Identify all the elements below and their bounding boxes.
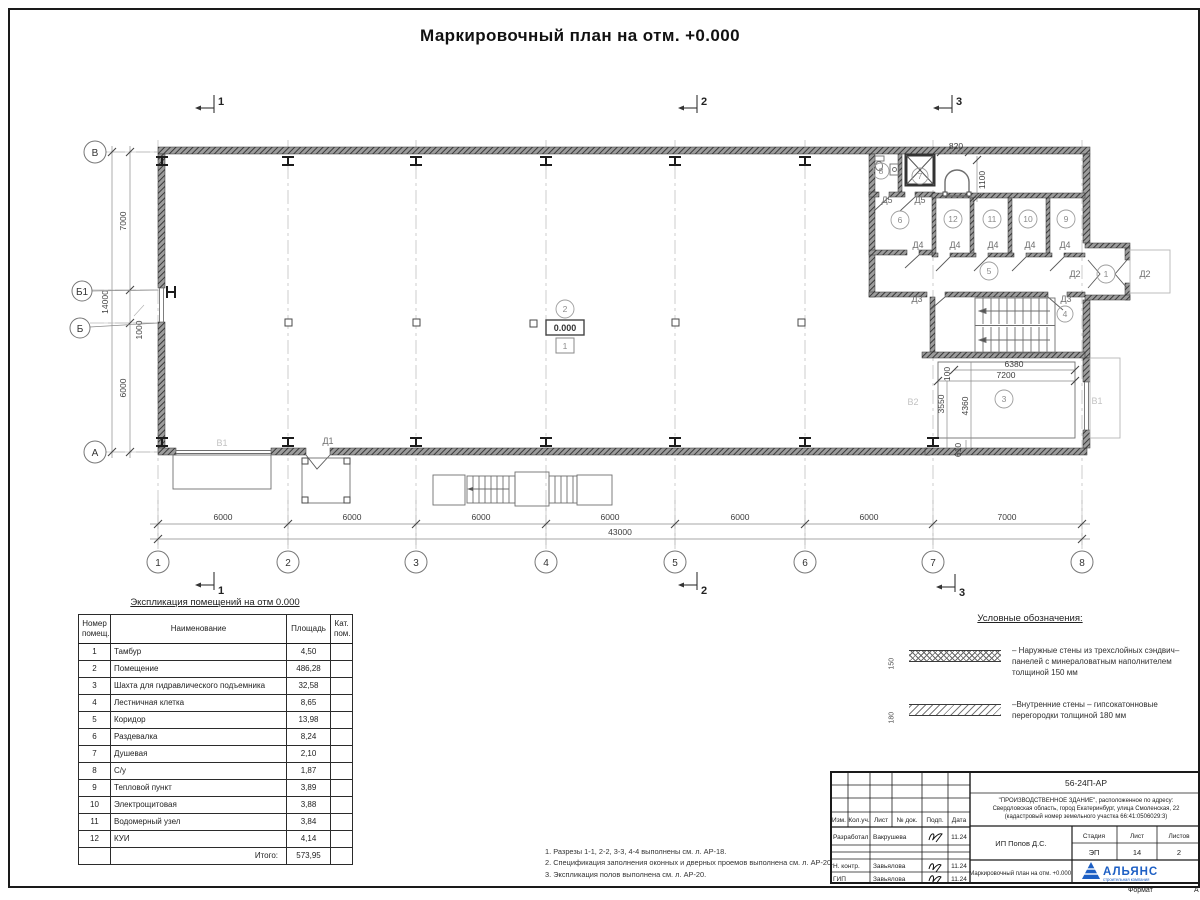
- project-description-line: Свердловская область, город Екатеринбург…: [993, 806, 1181, 812]
- room-mark: 5: [987, 266, 992, 276]
- table-total-row: Итого: 573,95: [79, 848, 353, 865]
- floor-tag: 1: [563, 341, 568, 351]
- total-value: 573,95: [287, 848, 331, 865]
- col-header-num: Номер помещ.: [79, 615, 111, 644]
- client-name: ИП Попов Д.С.: [995, 839, 1046, 848]
- person-name: Завьялова: [873, 876, 906, 883]
- col-header-name: Наименование: [111, 615, 287, 644]
- label-window-v1: В1: [1091, 396, 1102, 406]
- exterior-structures: [173, 250, 1170, 506]
- stage-label: Стадия: [1083, 833, 1106, 840]
- person-role: Разработал: [833, 833, 869, 841]
- room-mark: 2: [563, 304, 568, 314]
- dim-3550: 3550: [936, 394, 946, 413]
- person-date: 11.24: [951, 863, 967, 870]
- drawing-sheet: { "sheet": { "title": "Маркировочный пла…: [0, 0, 1200, 900]
- table-row: 1Тамбур4,50: [79, 644, 353, 661]
- room-mark: 1: [1104, 269, 1109, 279]
- legend-dim-180: 180: [889, 712, 896, 724]
- dim-610: 610: [953, 443, 963, 457]
- person-date: 11.24: [951, 834, 967, 841]
- legend-title: Условные обозначения:: [880, 613, 1180, 624]
- legend-text-interior: –Внутренние стены – гипсокатонновые пере…: [1012, 700, 1200, 722]
- note-line: 3. Экспликация полов выполнена см. л. АР…: [545, 869, 833, 880]
- detail-dimensions: 820 1100 6380 7200 100 3550 4360 610: [936, 141, 1024, 457]
- interior-wall-hatch-swatch: [909, 704, 1001, 716]
- col-list: Лист: [874, 817, 888, 824]
- grid-col-1: 1: [155, 558, 161, 569]
- format-value: А: [1194, 887, 1199, 894]
- grid-col-3: 3: [413, 558, 419, 569]
- elevation-value: 0.000: [554, 323, 577, 333]
- section-mark-1: 1: [218, 96, 224, 108]
- person-date: 11.24: [951, 876, 967, 883]
- label-window-v1: В1: [216, 438, 227, 448]
- grid-row-a: А: [92, 448, 99, 459]
- table-row: 9Тепловой пункт3,89: [79, 780, 353, 797]
- legend-item-exterior-wall: 150 – Наружные стены из трехслойных сэнд…: [886, 646, 1200, 678]
- sheet-number: 14: [1133, 848, 1141, 857]
- legend-dim-150: 150: [889, 658, 896, 670]
- format-label: Формат: [1128, 887, 1153, 894]
- dim-7200: 7200: [997, 370, 1016, 380]
- room-mark: 9: [1064, 214, 1069, 224]
- label-door-d2: Д2: [1069, 269, 1080, 279]
- room-mark: 4: [1063, 309, 1068, 319]
- exterior-wall-hatch-swatch: [909, 650, 1001, 662]
- person-name: Вакрушева: [873, 834, 907, 841]
- section-mark-2: 2: [701, 585, 707, 597]
- dim-row-b-a: 6000: [118, 378, 128, 397]
- column-squares: [285, 319, 805, 327]
- grid-col-6: 6: [802, 558, 808, 569]
- label-door-d4: Д4: [987, 240, 998, 250]
- column-grid-bubbles: 1 2 3 4 5 6 7 8: [147, 551, 1093, 573]
- label-door-d5: Д5: [914, 195, 925, 205]
- stage-value: ЭП: [1089, 848, 1100, 857]
- grid-row-v: В: [92, 148, 99, 159]
- section-marks-bottom: 1 2 3: [195, 572, 965, 599]
- dim-4360: 4360: [960, 396, 970, 415]
- table-row: 6Раздевалка8,24: [79, 729, 353, 746]
- section-marks-top: 1 2 3: [195, 95, 962, 113]
- grid-col-8: 8: [1079, 558, 1085, 569]
- table-row: 5Коридор13,98: [79, 712, 353, 729]
- table-row: 7Душевая2,10: [79, 746, 353, 763]
- title-block: 56-24П-АР "ПРОИЗВОДСТВЕННОЕ ЗДАНИЕ", рас…: [830, 771, 1200, 884]
- table-row: 8С/у1,87: [79, 763, 353, 780]
- label-door-d4: Д4: [1059, 240, 1070, 250]
- table-row: 2Помещение486,28: [79, 661, 353, 678]
- interior-staircase: [975, 298, 1055, 353]
- label-door-d2: Д2: [1139, 269, 1150, 279]
- room-mark: 12: [948, 214, 958, 224]
- table-row: 4Лестничная клетка8,65: [79, 695, 353, 712]
- sheets-total: 2: [1177, 848, 1181, 857]
- room-mark: 7: [918, 171, 923, 181]
- person-role: Н. контр.: [833, 863, 860, 870]
- explication-title: Экспликация помещений на отм 0.000: [78, 597, 352, 608]
- grid-row-b: Б: [77, 324, 84, 335]
- door-swings: [306, 197, 1127, 469]
- col-header-cat: Кат. пом.: [331, 615, 353, 644]
- col-ndok: № док.: [897, 817, 918, 824]
- dim-100: 100: [942, 367, 952, 381]
- doc-number: 56-24П-АР: [1065, 778, 1107, 788]
- table-row: 12КУИ4,14: [79, 831, 353, 848]
- label-door-d5: Д5: [881, 195, 892, 205]
- dim-total-width: 43000: [608, 527, 632, 537]
- column-ibeams: [156, 157, 939, 446]
- dim-span-5-6: 6000: [731, 512, 750, 522]
- section-mark-3: 3: [959, 587, 965, 599]
- sheet-label: Лист: [1130, 833, 1144, 840]
- dim-span-7-8: 7000: [998, 512, 1017, 522]
- explication-table: Номер помещ. Наименование Площадь Кат. п…: [78, 614, 353, 865]
- signature: [929, 864, 941, 872]
- alliance-logo: АЛЬЯНС строительная компания: [1082, 862, 1158, 882]
- legend-item-interior-wall: 180 –Внутренние стены – гипсокатонновые …: [886, 700, 1200, 722]
- section-mark-2: 2: [701, 96, 707, 108]
- label-door-d4: Д4: [949, 240, 960, 250]
- bottom-dimensions: 6000 6000 6000 6000 6000 6000 7000 43000: [150, 500, 1090, 545]
- dim-6380: 6380: [1005, 359, 1024, 369]
- sheet-title: Маркировочный план на отм. +0.000.: [969, 870, 1073, 877]
- dim-span-4-5: 6000: [601, 512, 620, 522]
- grid-col-5: 5: [672, 558, 678, 569]
- dim-span-1-2: 6000: [214, 512, 233, 522]
- person-name: Завьялова: [873, 863, 906, 870]
- col-header-area: Площадь: [287, 615, 331, 644]
- signature: [929, 834, 942, 842]
- label-door-d4: Д4: [912, 240, 923, 250]
- room-marks: 1 2 3 4 5 6 7 8 9 10 11 12: [556, 163, 1115, 408]
- table-row: 10Электрощитовая3,88: [79, 797, 353, 814]
- dim-1100: 1100: [977, 171, 987, 190]
- label-door-d3: Д3: [1060, 294, 1071, 304]
- col-data: Дата: [952, 817, 967, 824]
- col-izm: Изм.: [832, 817, 846, 824]
- row-grid-bubbles: В Б1 Б А: [70, 141, 158, 463]
- table-row: 3Шахта для гидравлического подъемника32,…: [79, 678, 353, 695]
- dim-820: 820: [949, 141, 963, 151]
- room-mark: 6: [898, 215, 903, 225]
- label-window-v2: В2: [907, 397, 918, 407]
- person-role: ГИП: [833, 876, 846, 883]
- dim-row-b1-b: 1000: [134, 320, 144, 339]
- room-mark: 11: [988, 214, 997, 224]
- room-explication: Экспликация помещений на отм 0.000 Номер…: [78, 597, 352, 865]
- col-koluch: Кол.уч.: [848, 817, 869, 824]
- section-mark-1: 1: [218, 585, 224, 597]
- legend-text-exterior: – Наружные стены из трехслойных сэндвич–…: [1012, 646, 1200, 678]
- room-mark: 3: [1002, 394, 1007, 404]
- sheets-label: Листов: [1168, 833, 1190, 840]
- elevation-mark: 0.000 1: [546, 320, 584, 353]
- left-dimensions: 7000 1000 6000 14000: [100, 146, 158, 458]
- dim-span-3-4: 6000: [472, 512, 491, 522]
- table-row: 11Водомерный узел3,84: [79, 814, 353, 831]
- floor-plan-drawing: 6000 6000 6000 6000 6000 6000 7000 43000…: [0, 0, 1200, 600]
- total-label: Итого:: [111, 848, 287, 865]
- note-line: 1. Разрезы 1-1, 2-2, 3-3, 4-4 выполнены …: [545, 846, 833, 857]
- project-description-line: (кадастровый номер земельного участка 66…: [1005, 813, 1168, 820]
- dim-span-6-7: 6000: [860, 512, 879, 522]
- note-line: 2. Спецификация заполнения оконных и две…: [545, 857, 833, 868]
- grid-col-7: 7: [930, 558, 936, 569]
- grid-col-4: 4: [543, 558, 549, 569]
- grid-row-b1: Б1: [76, 287, 89, 298]
- col-podp: Подп.: [926, 817, 943, 824]
- dim-total-height: 14000: [100, 290, 110, 314]
- grid-col-2: 2: [285, 558, 291, 569]
- label-door-d3: Д3: [911, 294, 922, 304]
- dim-span-2-3: 6000: [343, 512, 362, 522]
- label-door-d1: Д1: [322, 436, 333, 446]
- room-mark: 10: [1023, 214, 1033, 224]
- label-door-d4: Д4: [1024, 240, 1035, 250]
- section-mark-3: 3: [956, 96, 962, 108]
- room-mark: 8: [879, 166, 884, 176]
- project-description-line: "ПРОИЗВОДСТВЕННОЕ ЗДАНИЕ", расположенное…: [999, 798, 1174, 804]
- drawing-notes: 1. Разрезы 1-1, 2-2, 3-3, 4-4 выполнены …: [545, 846, 833, 880]
- logo-subtext: строительная компания: [1103, 877, 1149, 882]
- dim-row-v-b1: 7000: [118, 211, 128, 230]
